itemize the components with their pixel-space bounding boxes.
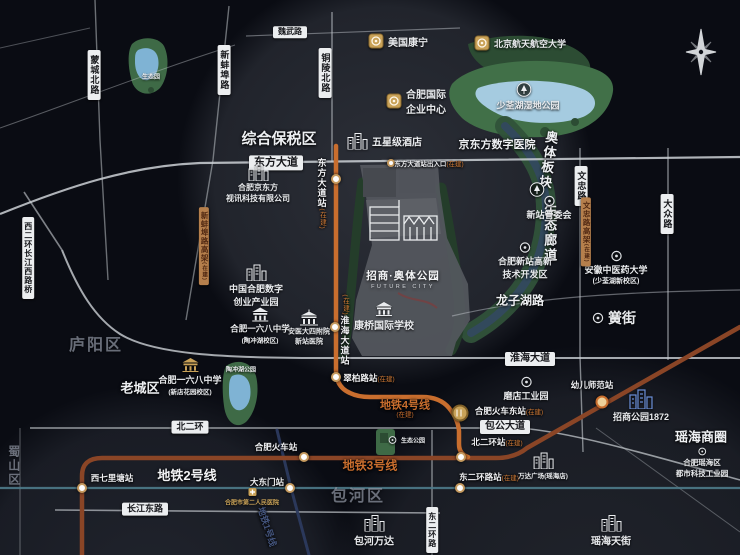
station-sub-9: (在建) — [342, 294, 349, 315]
station-name-2: 大东门站 — [250, 477, 284, 487]
station-label-7: 翠柏路站(在建) — [343, 372, 394, 384]
area-label-7: 蜀山区 — [6, 445, 19, 487]
boe-visual-tech-line-1: 视讯科技有限公司 — [226, 193, 290, 204]
yaohai-urban-tech-park: 合肥瑶海区都市科技工业园 — [676, 447, 729, 479]
ring-icon — [520, 376, 532, 388]
eco-park-label: 生态公园 — [388, 436, 425, 445]
boe-visual-tech-label: 合肥京东方视讯科技有限公司 — [226, 182, 290, 204]
gold-badge-icon — [368, 33, 384, 49]
station-sub-3: (在建) — [505, 440, 522, 447]
anhui-tcm-university-line-0: 安徽中医药大学 — [584, 263, 647, 276]
wanda-plaza-yaohai-label: 万达广场(瑶海店) — [518, 470, 568, 480]
hongjie-line-0: 黉街 — [608, 308, 636, 328]
buildings-icon — [532, 452, 554, 469]
station-name-3: 北二环站 — [471, 437, 505, 447]
area-label-0: 综合保税区 — [241, 132, 316, 149]
yaohai-urban-tech-park-line-1: 都市科技工业园 — [676, 468, 729, 479]
modian-industrial-park-label: 磨店工业园 — [503, 389, 548, 402]
no168-school-xindian-label: 合肥一六八中学(新店花园校区) — [158, 373, 221, 396]
gold-badge-icon — [386, 93, 402, 109]
metro-line-label-2: 地铁4号线(在建) — [380, 399, 430, 418]
hefei-intl-enterprise-center: 合肥国际企业中心 — [386, 86, 446, 116]
metro-line-label-text-1: 地铁3号线 — [343, 458, 398, 472]
buildings-icon — [600, 515, 622, 532]
badge-text-0: 新蚌埠路高架 — [200, 211, 209, 262]
buildings-icon — [346, 133, 368, 150]
station-label-10: 东方大道站出入口(在建) — [394, 158, 463, 168]
station-label-2: 大东门站 — [250, 476, 284, 488]
corridor-tree — [530, 182, 545, 198]
shaoquan-lake-tree — [517, 82, 532, 98]
xinzhan-hitech-zone-label: 合肥新站高新技术开发区 — [498, 255, 552, 281]
tree-icon — [517, 82, 532, 97]
anyida-hospital-line-1: 新站医院 — [288, 337, 330, 347]
project-name: 招商·奥体公园 — [366, 268, 440, 283]
xinzhan-committee-label: 新站管委会 — [526, 208, 571, 221]
zhaoshang-park-1872-line-0: 招商公园1872 — [613, 410, 669, 423]
no168-school-xindian: 合肥一六八中学(新店花园校区) — [158, 358, 221, 396]
station-name-0: 西七里塘站 — [91, 473, 134, 483]
ring-icon — [543, 195, 555, 207]
hefei-intl-enterprise-center-line-1: 企业中心 — [406, 101, 446, 116]
project-label: 招商·奥体公园 FUTURE CITY — [366, 268, 440, 290]
road-label-5: 西二环长江西路桥 — [22, 217, 34, 299]
xinzhan-committee: 新站管委会 — [526, 195, 571, 221]
kangqiao-intl-school-label: 康桥国际学校 — [354, 317, 414, 332]
station-name-1: 合肥火车站 — [255, 442, 298, 452]
location-map: 综合保税区京东方数字医院奥体板块生态廊道龙子湖路庐阳区老城区蜀山区包河区瑶海商圈… — [0, 0, 740, 555]
station-label-4: 东二环路站(在建) — [459, 471, 519, 483]
station-label-6: 合肥火车东站(在建) — [475, 405, 543, 417]
station-sub-6: (在建) — [526, 409, 543, 416]
yaohai-tianjie: 瑶海天街 — [591, 515, 631, 548]
hongjie-label: 黉街 — [608, 308, 636, 328]
project-name-en: FUTURE CITY — [366, 284, 440, 290]
wanda-plaza-yaohai: 万达广场(瑶海店) — [518, 452, 568, 480]
ring-icon — [519, 242, 531, 254]
corning-label: 美国康宁 — [388, 34, 428, 49]
shaoquan-lake-wetland-park-line-0: 少荃湖湿地公园 — [496, 99, 559, 112]
gold-badge-icon — [474, 35, 490, 51]
anyida-hospital-line-0: 安医大四附院 — [288, 327, 330, 337]
metro-line-label-1: 地铁3号线 — [343, 459, 398, 472]
tiny-ring-icon — [388, 436, 397, 445]
no168-school-xindian-line-0: 合肥一六八中学 — [158, 373, 221, 386]
yaohai-tianjie-label: 瑶海天街 — [591, 533, 631, 548]
anhui-tcm-university: 安徽中医药大学(少荃湖新校区) — [584, 250, 647, 286]
station-name-8: 东方大道站 — [317, 158, 327, 208]
school-icon — [181, 358, 199, 372]
tiny-ring-icon — [698, 447, 707, 456]
no168-school-taochonghu-label: 合肥一六八中学(陶冲湖校区) — [230, 323, 290, 345]
zhaoshang-park-1872-label: 招商公园1872 — [613, 410, 669, 423]
digital-venture-park: 中国合肥数字创业产业园 — [229, 264, 283, 308]
yaohai-urban-tech-park-line-0: 合肥瑶海区 — [676, 457, 729, 468]
station-name-6: 合肥火车东站 — [475, 406, 526, 416]
station-dot-0 — [77, 483, 87, 493]
eco-park-label-label: 生态公园 — [401, 436, 425, 445]
five-star-hotel-line-0: 五星级酒店 — [372, 134, 422, 149]
road-label-8: 淮海大道 — [505, 352, 555, 366]
school-white-icon — [251, 308, 269, 322]
five-star-hotel: 五星级酒店 — [346, 133, 422, 150]
station-dot-3 — [456, 452, 466, 462]
xinzhan-hitech-zone-line-1: 技术开发区 — [498, 268, 552, 281]
station-dot-4 — [455, 483, 465, 493]
station-dot-6 — [452, 405, 469, 422]
no168-school-taochonghu: 合肥一六八中学(陶冲湖校区) — [230, 308, 290, 345]
hefei-intl-enterprise-center-line-0: 合肥国际 — [406, 86, 446, 101]
area-label-1: 京东方数字医院 — [459, 139, 536, 151]
station-name-7: 翠柏路站 — [343, 373, 377, 383]
zhaoshang-park-1872: 招商公园1872 — [613, 389, 669, 423]
ring-icon — [610, 250, 622, 262]
ecology-garden-label-label: 生态园 — [142, 72, 160, 81]
anyida-hospital-label: 安医大四附院新站医院 — [288, 327, 330, 347]
ecology-garden-label-line-0: 生态园 — [142, 72, 160, 81]
metro-line-label-0: 地铁2号线 — [157, 469, 216, 483]
beihang-university-label: 北京航天航空大学 — [494, 37, 566, 50]
ecology-garden-label: 生态园 — [142, 72, 160, 81]
road-label-2: 魏武路 — [273, 26, 307, 38]
digital-venture-park-label: 中国合肥数字创业产业园 — [229, 282, 283, 308]
corning: 美国康宁 — [368, 33, 428, 49]
baohe-wanda-label: 包河万达 — [354, 533, 394, 548]
area-label-5: 庐阳区 — [69, 337, 123, 355]
station-label-0: 西七里塘站 — [91, 472, 134, 484]
road-label-3: 铜陵北路 — [319, 48, 332, 98]
station-name-4: 东二环路站 — [459, 472, 502, 482]
metro-line-label-3: 地铁1号线 — [255, 506, 277, 548]
beihang-university: 北京航天航空大学 — [474, 35, 566, 51]
school-white-icon — [375, 302, 393, 316]
station-label-1: 合肥火车站 — [255, 441, 298, 453]
station-label-9: (在建)淮海大道站 — [339, 294, 352, 365]
gold-sq-icon — [247, 488, 256, 497]
xinzhan-committee-line-0: 新站管委会 — [526, 208, 571, 221]
road-label-7: 大众路 — [661, 194, 674, 234]
digital-venture-park-line-1: 创业产业园 — [229, 295, 283, 308]
kangqiao-intl-school: 康桥国际学校 — [354, 302, 414, 332]
station-label-3: 北二环站(在建) — [471, 436, 522, 448]
baohe-wanda: 包河万达 — [354, 515, 394, 548]
station-name-9: 淮海大道站 — [340, 316, 350, 366]
baohe-wanda-line-0: 包河万达 — [354, 533, 394, 548]
no168-school-xindian-line-1: (新店花园校区) — [158, 386, 221, 396]
xinzhan-hitech-zone: 合肥新站高新技术开发区 — [498, 242, 552, 281]
hospital-icon — [298, 310, 320, 326]
elevated-road-badge-0: 新蚌埠路高架(在建) — [199, 207, 209, 285]
digital-venture-park-line-0: 中国合肥数字 — [229, 282, 283, 295]
station-dot-8 — [331, 174, 341, 184]
hefei-intl-enterprise-center-label: 合肥国际企业中心 — [406, 86, 446, 116]
station-dot-2 — [285, 483, 295, 493]
yaohai-tianjie-line-0: 瑶海天街 — [591, 533, 631, 548]
station-sub-4: (在建) — [502, 475, 519, 482]
road-label-0: 蒙城北路 — [88, 50, 101, 100]
taochonghu-park-label-line-0: 陶冲湖公园 — [226, 365, 256, 374]
station-name-5: 幼儿师范站 — [571, 380, 614, 390]
station-sub-10: (在建) — [446, 161, 463, 168]
road-label-12: 东二环路 — [426, 507, 438, 553]
road-label-9: 北二环 — [171, 421, 208, 434]
corning-line-0: 美国康宁 — [388, 34, 428, 49]
buildings-icon — [363, 515, 385, 532]
station-sub-8: (在建) — [319, 208, 326, 229]
ring-icon — [592, 312, 604, 324]
station-dot-7 — [331, 372, 341, 382]
anhui-tcm-university-line-1: (少荃湖新校区) — [584, 276, 647, 286]
taochonghu-park-label: 陶冲湖公园 — [226, 365, 256, 374]
buildings-icon — [245, 264, 267, 281]
no168-school-taochonghu-line-0: 合肥一六八中学 — [230, 323, 290, 335]
area-label-9: 瑶海商圈 — [675, 431, 727, 446]
area-label-6: 老城区 — [120, 382, 159, 397]
second-peoples-hospital-label: 合肥市第二人民医院 — [225, 498, 279, 507]
station-sub-7: (在建) — [377, 376, 394, 383]
metro-line-label-text-3: 地铁1号线 — [256, 506, 278, 548]
metro-line-label-text-0: 地铁2号线 — [157, 468, 216, 483]
taochonghu-park-label-label: 陶冲湖公园 — [226, 365, 256, 374]
tree-icon — [530, 182, 545, 197]
second-peoples-hospital: 合肥市第二人民医院 — [225, 488, 279, 507]
second-peoples-hospital-line-0: 合肥市第二人民医院 — [225, 498, 279, 507]
kangqiao-intl-school-line-0: 康桥国际学校 — [354, 317, 414, 332]
five-star-hotel-label: 五星级酒店 — [372, 134, 422, 149]
badge-sub-1: (在建) — [583, 244, 589, 263]
road-label-1: 新蚌埠路 — [218, 45, 231, 95]
badge-sub-0: (在建) — [201, 262, 207, 281]
station-dot-1 — [299, 452, 309, 462]
yaohai-urban-tech-park-label: 合肥瑶海区都市科技工业园 — [676, 457, 729, 479]
area-label-4: 龙子湖路 — [496, 294, 544, 307]
road-label-10: 包公大道 — [480, 420, 530, 434]
shaoquan-lake-wetland-park: 少荃湖湿地公园 — [496, 99, 559, 112]
station-label-5: 幼儿师范站 — [571, 379, 614, 391]
hongjie: 黉街 — [592, 308, 636, 328]
no168-school-taochonghu-line-1: (陶冲湖校区) — [230, 335, 290, 345]
beihang-university-line-0: 北京航天航空大学 — [494, 37, 566, 50]
modian-industrial-park: 磨店工业园 — [503, 376, 548, 402]
buildings-icon — [247, 164, 269, 181]
station-name-10: 东方大道站出入口 — [394, 161, 446, 168]
shaoquan-lake-wetland-park-label: 少荃湖湿地公园 — [496, 99, 559, 112]
road-label-11: 长江东路 — [122, 503, 168, 516]
boe-visual-tech-line-0: 合肥京东方 — [226, 182, 290, 193]
modian-industrial-park-line-0: 磨店工业园 — [503, 389, 548, 402]
wanda-plaza-yaohai-line-0: 万达广场(瑶海店) — [518, 470, 568, 480]
metro-line-label-text-2: 地铁4号线 — [380, 399, 430, 411]
station-dot-5 — [596, 396, 609, 409]
eco-park-label-line-0: 生态公园 — [401, 436, 425, 445]
area-label-8: 包河区 — [331, 488, 385, 506]
metro-line-label-sub-2: (在建) — [380, 411, 430, 418]
station-label-8: 东方大道站(在建) — [316, 158, 329, 229]
anyida-hospital: 安医大四附院新站医院 — [288, 310, 330, 347]
badge-text-1: 文忠路高架 — [582, 201, 591, 244]
elevated-road-badge-1: 文忠路高架(在建) — [581, 197, 591, 266]
boe-visual-tech: 合肥京东方视讯科技有限公司 — [226, 164, 290, 204]
xinzhan-hitech-zone-line-0: 合肥新站高新 — [498, 255, 552, 268]
blue-buildings-icon — [628, 389, 654, 409]
anhui-tcm-university-label: 安徽中医药大学(少荃湖新校区) — [584, 263, 647, 286]
